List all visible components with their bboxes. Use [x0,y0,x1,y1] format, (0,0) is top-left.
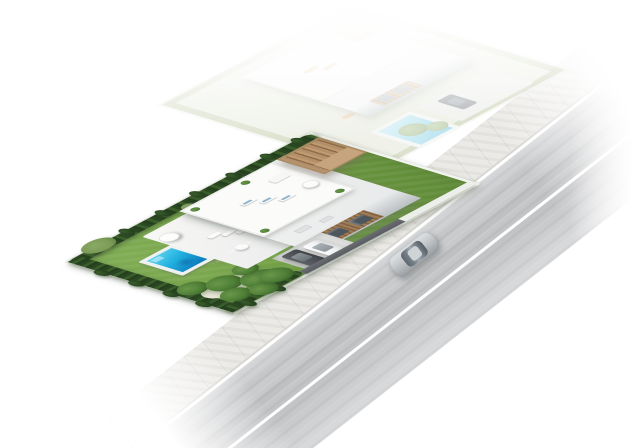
roof-sofa [267,172,291,183]
roof-planter [239,180,253,186]
roof-unit [293,225,312,234]
scene-render [0,0,640,448]
pool-steps [150,256,165,263]
roof-lounger [277,192,297,201]
roof-lounger [239,197,259,206]
roof-unit [318,216,335,223]
roof-planter [258,228,272,234]
roof-lounger [258,195,278,204]
roof-planter [188,206,202,212]
roof-planter [333,188,347,194]
